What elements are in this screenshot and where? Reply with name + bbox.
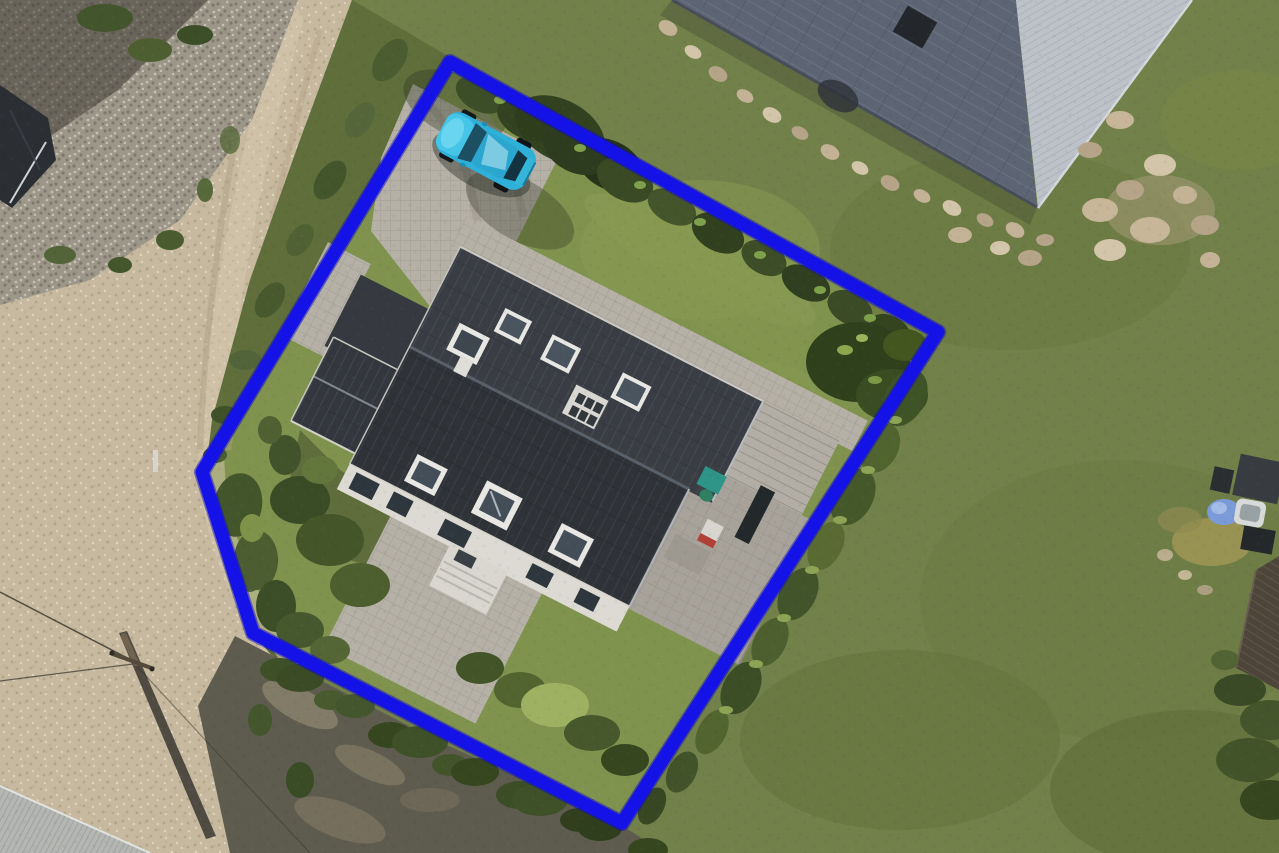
photo-render-root [0,0,1279,853]
aerial-photo-canvas [0,0,1279,853]
aerial-property-photo [0,0,1279,853]
photo-grain [0,0,1279,853]
layer-grain [0,0,1279,853]
